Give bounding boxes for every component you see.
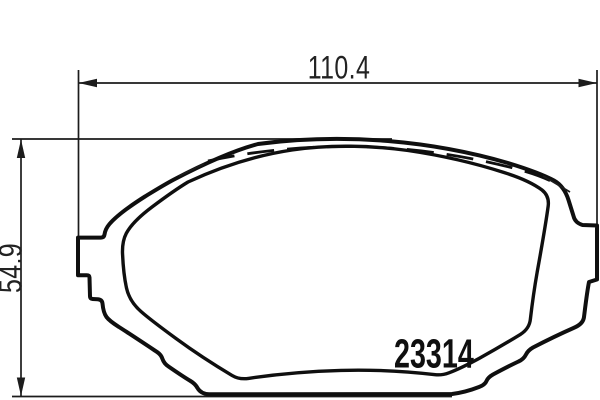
height-dimension-label: 54.9 bbox=[0, 243, 29, 293]
drawing-canvas: 110.4 54.9 23314 bbox=[0, 0, 600, 400]
brake-pad-technical-drawing: 110.4 54.9 23314 bbox=[0, 0, 600, 400]
part-number-label: 23314 bbox=[394, 332, 474, 377]
width-dimension-label: 110.4 bbox=[308, 51, 371, 87]
